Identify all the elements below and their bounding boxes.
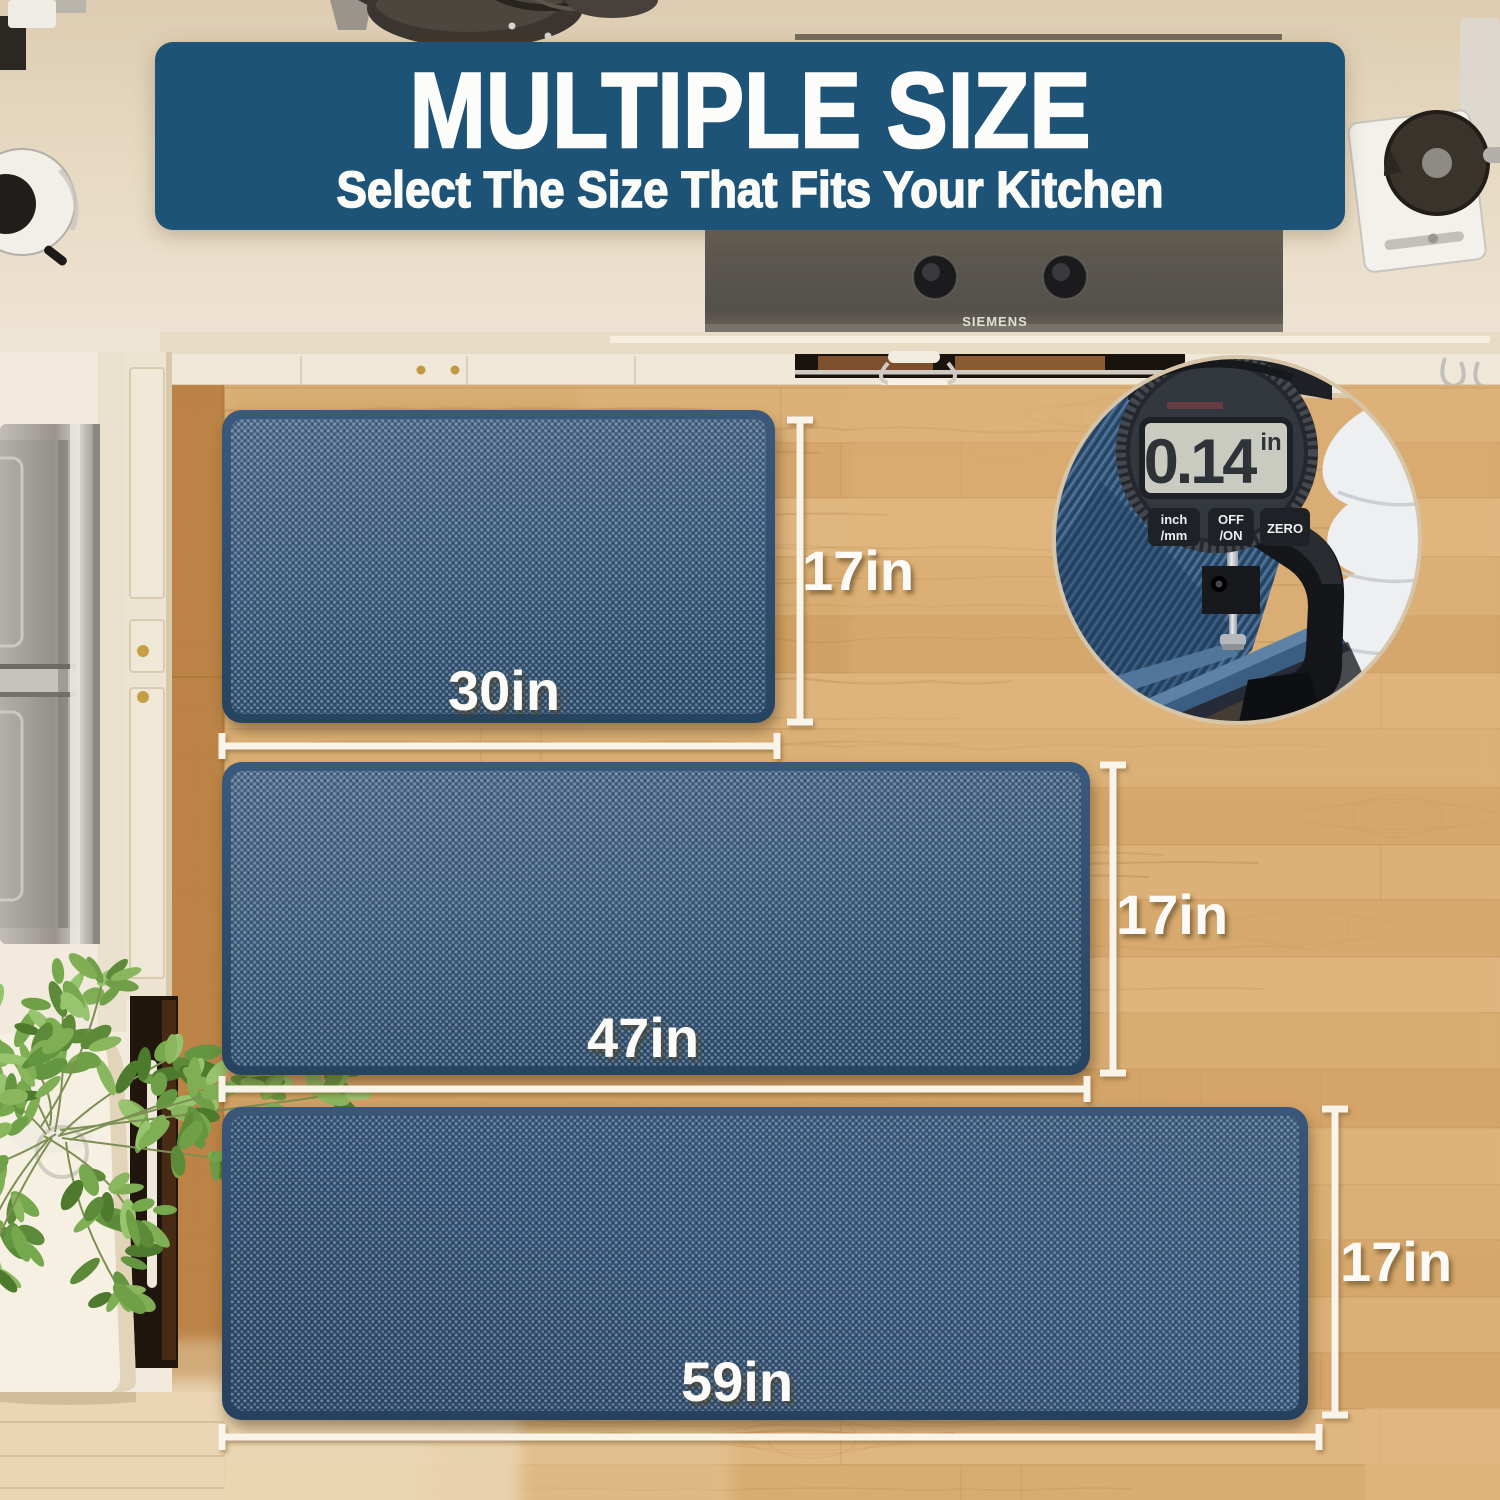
svg-text:17in: 17in xyxy=(1340,1230,1452,1293)
svg-text:SIEMENS: SIEMENS xyxy=(962,314,1028,329)
svg-text:OFF: OFF xyxy=(1218,512,1244,527)
svg-text:/mm: /mm xyxy=(1161,528,1188,543)
svg-text:0.14: 0.14 xyxy=(1144,427,1258,497)
svg-text:47in: 47in xyxy=(587,1006,699,1069)
svg-text:in: in xyxy=(1260,429,1281,456)
svg-text:inch: inch xyxy=(1161,512,1188,527)
svg-text:17in: 17in xyxy=(802,539,914,602)
svg-text:MULTIPLE SIZE: MULTIPLE SIZE xyxy=(410,50,1091,170)
svg-text:/ON: /ON xyxy=(1219,528,1242,543)
svg-text:ZERO: ZERO xyxy=(1267,521,1303,536)
svg-text:17in: 17in xyxy=(1116,883,1228,946)
svg-text:30in: 30in xyxy=(448,659,560,722)
svg-text:Select The Size That Fits Your: Select The Size That Fits Your Kitchen xyxy=(337,161,1164,218)
svg-text:59in: 59in xyxy=(681,1350,793,1413)
